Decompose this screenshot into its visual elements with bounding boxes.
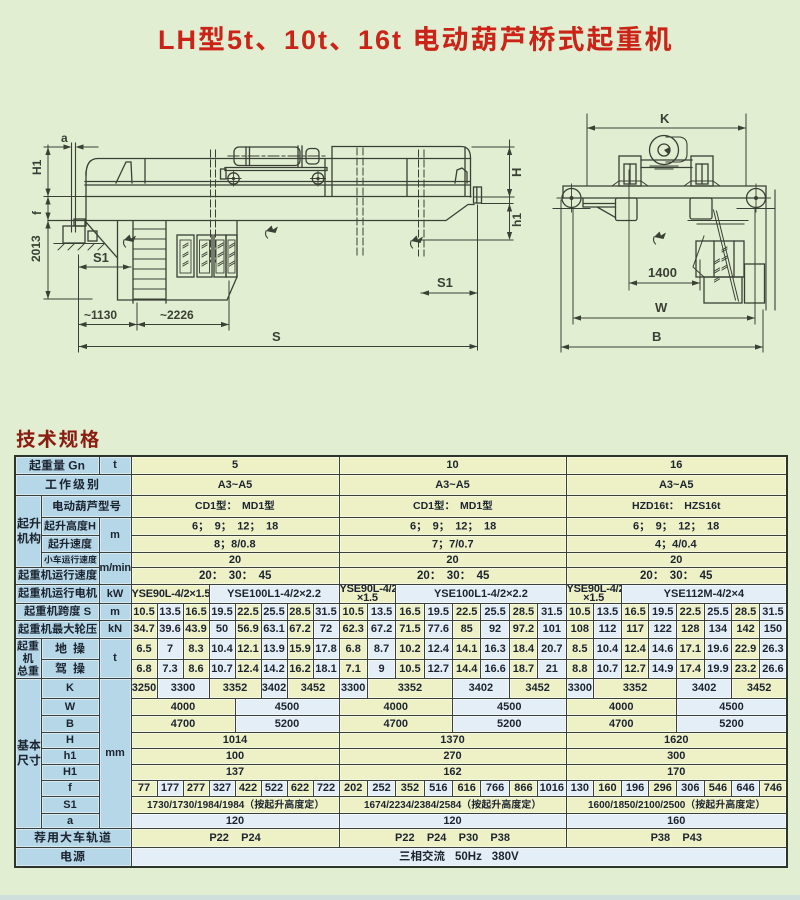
svg-text:9: 9 — [656, 521, 662, 533]
svg-text:12: 12 — [455, 521, 467, 533]
svg-text:20: 20 — [199, 570, 212, 582]
svg-text:4/0.4: 4/0.4 — [672, 538, 697, 550]
svg-text:4: 4 — [655, 538, 662, 550]
svg-text:B: B — [652, 329, 661, 344]
svg-text:f: f — [30, 210, 44, 215]
svg-text:MD1: MD1 — [242, 500, 264, 512]
svg-text:18: 18 — [484, 521, 496, 533]
svg-text:a: a — [61, 131, 68, 145]
svg-text:CD1: CD1 — [413, 500, 434, 512]
svg-text:30: 30 — [670, 570, 683, 582]
svg-text:S: S — [83, 606, 91, 618]
svg-text:7: 7 — [432, 538, 438, 550]
svg-text:20: 20 — [417, 570, 430, 582]
svg-text:K: K — [660, 111, 670, 126]
svg-text:1400: 1400 — [648, 265, 677, 280]
svg-text:30: 30 — [446, 570, 459, 582]
svg-text:Gn: Gn — [69, 458, 86, 472]
svg-text:8: 8 — [214, 538, 220, 550]
svg-text:20: 20 — [640, 570, 653, 582]
svg-text:12: 12 — [678, 521, 690, 533]
svg-text:1730/1730/1984/1984: 1730/1730/1984/1984 — [147, 800, 245, 811]
svg-text:18: 18 — [266, 521, 278, 533]
svg-text:45: 45 — [476, 570, 489, 582]
svg-text:H: H — [88, 521, 96, 533]
svg-text:1674/2234/2384/2584: 1674/2234/2384/2584 — [364, 800, 462, 811]
svg-text:h1: h1 — [510, 213, 524, 227]
svg-text:45: 45 — [259, 570, 272, 582]
svg-text:W: W — [655, 300, 668, 315]
svg-text:9: 9 — [432, 521, 438, 533]
svg-text:6: 6 — [410, 521, 416, 533]
svg-text:12: 12 — [237, 521, 249, 533]
svg-text:HZD16t: HZD16t — [632, 500, 669, 512]
svg-text:18: 18 — [707, 521, 719, 533]
svg-text:7/0.7: 7/0.7 — [449, 538, 473, 550]
svg-text:H1: H1 — [30, 159, 44, 175]
svg-text:MD1: MD1 — [460, 500, 482, 512]
svg-text:S1: S1 — [437, 275, 453, 290]
svg-text:CD1: CD1 — [195, 500, 216, 512]
svg-text:~2226: ~2226 — [160, 308, 194, 322]
svg-text:~1130: ~1130 — [84, 308, 117, 322]
svg-text:6: 6 — [192, 521, 198, 533]
svg-text:S1: S1 — [93, 250, 109, 265]
svg-text:S: S — [272, 329, 281, 344]
svg-text:8/0.8: 8/0.8 — [231, 538, 255, 550]
svg-text:380V: 380V — [492, 851, 519, 863]
svg-text:6: 6 — [633, 521, 639, 533]
svg-text:50Hz: 50Hz — [455, 851, 482, 863]
svg-text:2013: 2013 — [29, 235, 43, 262]
svg-text:H: H — [509, 168, 524, 177]
svg-text:45: 45 — [700, 570, 713, 582]
svg-text:9: 9 — [215, 521, 221, 533]
svg-text:1600/1850/2100/2500: 1600/1850/2100/2500 — [588, 800, 686, 811]
svg-text:HZS16t: HZS16t — [685, 500, 722, 512]
svg-text:30: 30 — [229, 570, 242, 582]
